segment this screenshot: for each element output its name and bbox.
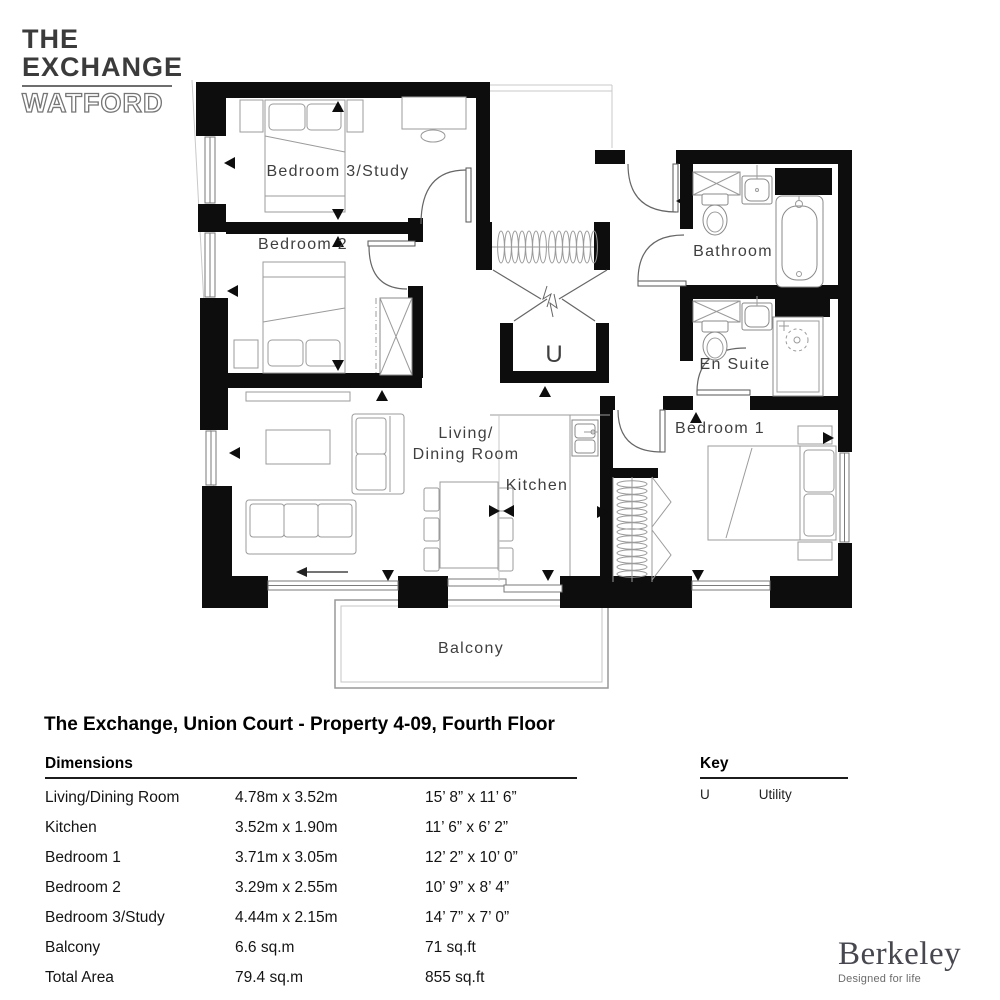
room-label-balcony: Balcony bbox=[438, 640, 504, 657]
bedside-table bbox=[798, 542, 832, 560]
metric-size: 4.78m x 3.52m bbox=[235, 783, 425, 813]
dimensions-table: Living/Dining Room 4.78m x 3.52m 15’ 8” … bbox=[45, 783, 585, 993]
bathroom-toilet bbox=[702, 194, 728, 235]
room-name: Bedroom 1 bbox=[45, 843, 235, 873]
metric-size: 4.44m x 2.15m bbox=[235, 903, 425, 933]
table-row: Bedroom 3/Study 4.44m x 2.15m 14’ 7” x 7… bbox=[45, 903, 585, 933]
metric-size: 3.29m x 2.55m bbox=[235, 873, 425, 903]
brand-tagline: Designed for life bbox=[838, 973, 968, 985]
room-label-utility: U bbox=[545, 341, 562, 368]
balcony-sliding-door bbox=[448, 579, 562, 592]
living-furniture bbox=[246, 392, 513, 577]
slider-direction-arrow bbox=[296, 567, 348, 577]
table-row: Living/Dining Room 4.78m x 3.52m 15’ 8” … bbox=[45, 783, 585, 813]
ensuite-shelf bbox=[693, 301, 740, 322]
door-bedroom1 bbox=[618, 410, 665, 452]
room-label-bedroom3: Bedroom 3/Study bbox=[266, 163, 409, 180]
bedside-table bbox=[234, 340, 258, 368]
sofa-two-seat bbox=[352, 414, 404, 494]
bathroom-basin bbox=[742, 165, 772, 204]
brand-name: Berkeley bbox=[838, 936, 968, 973]
dining-table bbox=[424, 482, 513, 571]
sofa-three-seat bbox=[246, 500, 356, 554]
imperial-size: 15’ 8” x 11’ 6” bbox=[425, 783, 585, 813]
room-label-living-2: Dining Room bbox=[413, 446, 520, 463]
table-row: Total Area 79.4 sq.m 855 sq.ft bbox=[45, 963, 585, 993]
wardrobe-bedroom2 bbox=[376, 298, 412, 375]
imperial-size: 11’ 6” x 6’ 2” bbox=[425, 813, 585, 843]
coffee-table bbox=[266, 430, 330, 464]
window-living-bottom bbox=[268, 581, 398, 590]
room-label-bathroom: Bathroom bbox=[693, 243, 773, 260]
metric-size: 79.4 sq.m bbox=[235, 963, 425, 993]
bedroom3-furniture bbox=[240, 97, 466, 212]
ensuite-toilet bbox=[702, 321, 728, 360]
room-label-kitchen: Kitchen bbox=[506, 477, 568, 494]
wardrobe-bedroom1 bbox=[613, 477, 671, 582]
bedside-table bbox=[240, 100, 263, 132]
shower bbox=[773, 317, 823, 396]
metric-size: 3.71m x 3.05m bbox=[235, 843, 425, 873]
bedside-table bbox=[347, 100, 363, 132]
imperial-size: 71 sq.ft bbox=[425, 933, 585, 963]
floorplan-page: THE EXCHANGE WATFORD bbox=[0, 0, 1000, 1000]
sideboard bbox=[246, 392, 350, 401]
door-bathroom bbox=[638, 235, 686, 286]
kitchen-sink bbox=[572, 420, 598, 456]
table-row: Bedroom 2 3.29m x 2.55m 10’ 9” x 8’ 4” bbox=[45, 873, 585, 903]
window-living-left bbox=[206, 431, 216, 485]
imperial-size: 12’ 2” x 10’ 0” bbox=[425, 843, 585, 873]
table-row: Balcony 6.6 sq.m 71 sq.ft bbox=[45, 933, 585, 963]
room-label-ensuite: En Suite bbox=[700, 356, 771, 373]
room-name: Balcony bbox=[45, 933, 235, 963]
coat-closet bbox=[492, 231, 597, 263]
room-name: Kitchen bbox=[45, 813, 235, 843]
table-row: Kitchen 3.52m x 1.90m 11’ 6” x 6’ 2” bbox=[45, 813, 585, 843]
key-heading: Key bbox=[700, 755, 728, 773]
room-name: Bedroom 3/Study bbox=[45, 903, 235, 933]
window-bedroom2-left bbox=[205, 233, 215, 297]
room-name: Total Area bbox=[45, 963, 235, 993]
key-symbol: U bbox=[700, 783, 755, 807]
bedroom1-furniture bbox=[613, 426, 836, 582]
room-label-bedroom1: Bedroom 1 bbox=[675, 420, 765, 437]
imperial-size: 14’ 7” x 7’ 0” bbox=[425, 903, 585, 933]
imperial-size: 855 sq.ft bbox=[425, 963, 585, 993]
utility-closet-doors bbox=[514, 294, 595, 321]
berkeley-logo: Berkeley Designed for life bbox=[838, 936, 968, 985]
room-label-living-1: Living/ bbox=[438, 425, 493, 442]
metric-size: 3.52m x 1.90m bbox=[235, 813, 425, 843]
metric-size: 6.6 sq.m bbox=[235, 933, 425, 963]
table-row: Bedroom 1 3.71m x 3.05m 12’ 2” x 10’ 0” bbox=[45, 843, 585, 873]
door-bedroom2 bbox=[368, 241, 415, 289]
bedroom2-furniture bbox=[234, 262, 412, 375]
room-name: Bedroom 2 bbox=[45, 873, 235, 903]
desk-chair bbox=[421, 130, 445, 142]
imperial-size: 10’ 9” x 8’ 4” bbox=[425, 873, 585, 903]
window-bedroom1-bottom bbox=[692, 581, 770, 590]
key-underline bbox=[700, 777, 848, 779]
page-title: The Exchange, Union Court - Property 4-0… bbox=[44, 714, 555, 736]
desk bbox=[402, 97, 466, 129]
room-label-bedroom2: Bedroom 2 bbox=[258, 236, 348, 253]
door-bedroom3 bbox=[421, 168, 471, 224]
ensuite-basin bbox=[742, 296, 772, 330]
key-entry: U Utility bbox=[700, 783, 900, 807]
door-hall bbox=[628, 164, 678, 212]
dimensions-underline bbox=[45, 777, 577, 779]
dimensions-heading: Dimensions bbox=[45, 755, 133, 773]
window-bedroom3-left bbox=[205, 137, 215, 203]
bathtub bbox=[776, 196, 823, 287]
key-label: Utility bbox=[759, 787, 792, 802]
bed-bedroom1 bbox=[708, 446, 836, 540]
bathroom-shelf bbox=[693, 172, 740, 195]
room-name: Living/Dining Room bbox=[45, 783, 235, 813]
window-bedroom1-right bbox=[840, 453, 849, 542]
entry-closet-doors bbox=[493, 270, 607, 307]
